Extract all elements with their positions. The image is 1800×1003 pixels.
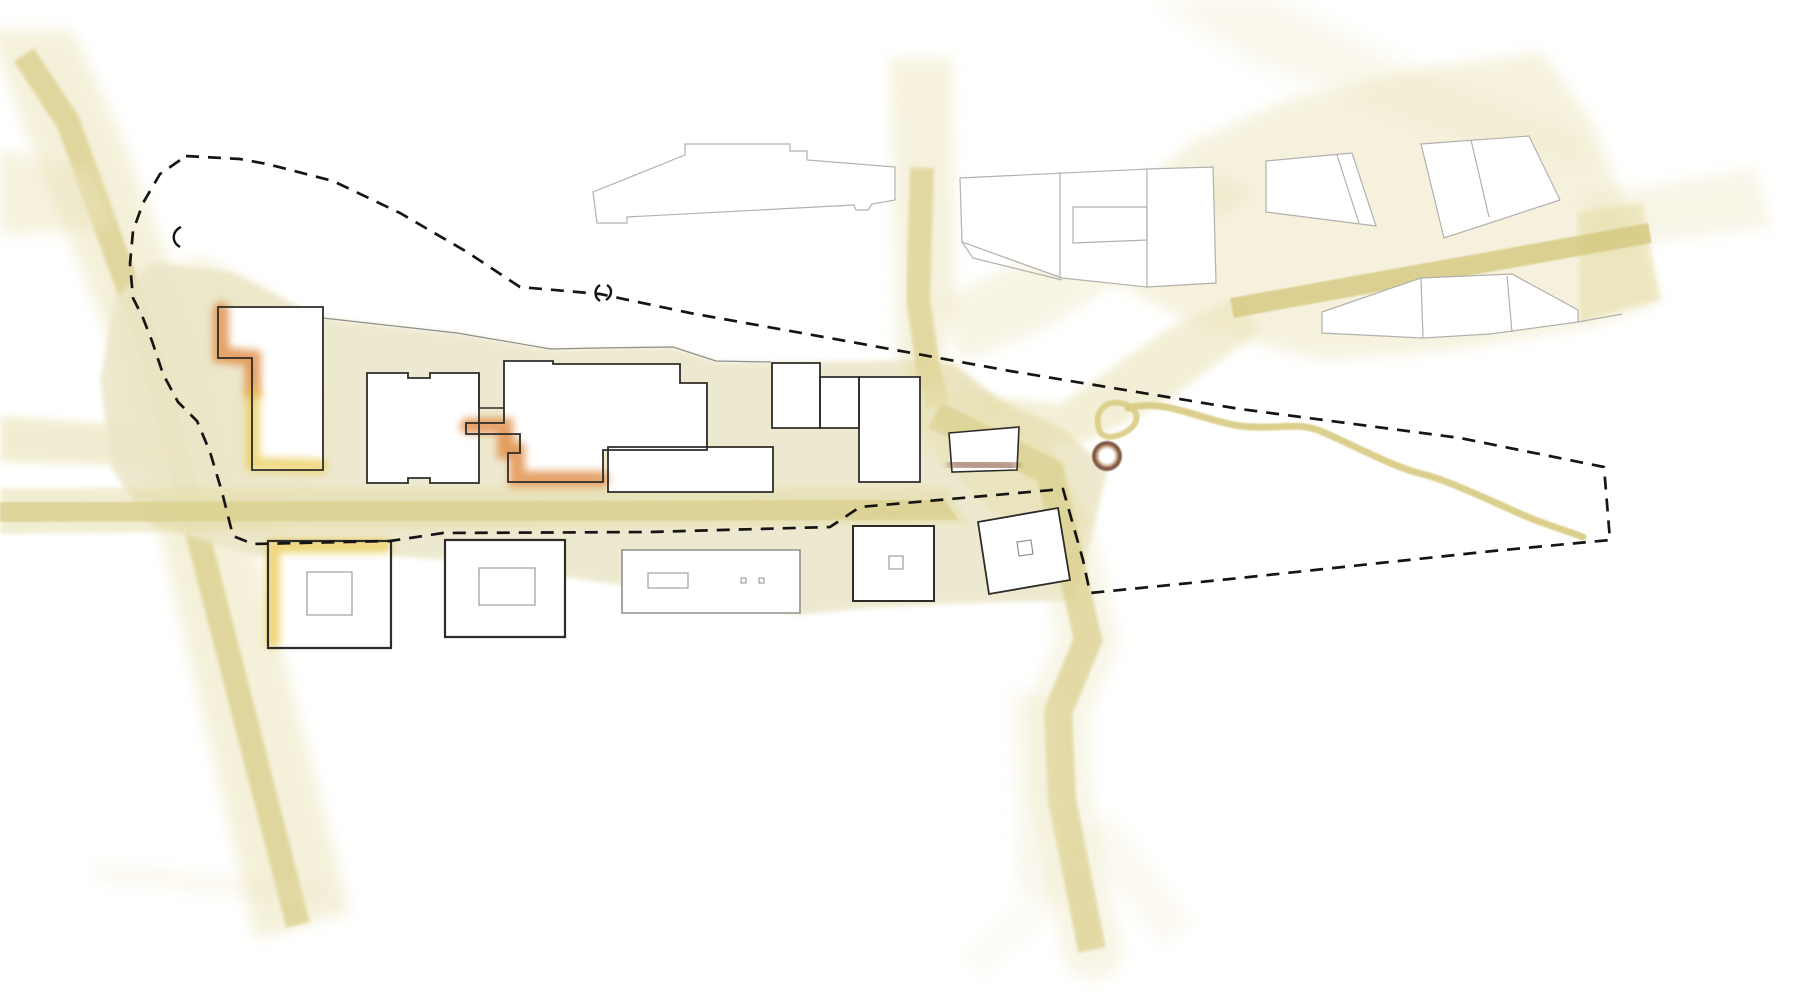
landmark-circle-marker (1091, 440, 1123, 472)
mill-east-c-fill (859, 377, 920, 482)
south-road-left-branch (972, 890, 1058, 965)
site-plan-figure (0, 0, 1800, 1003)
markers (1091, 440, 1123, 472)
south-building-1-fill (268, 541, 391, 648)
south-building-2-fill (445, 540, 565, 637)
south-building-5-fill (978, 508, 1070, 594)
northeast-block (960, 167, 1216, 287)
north-long-building (593, 144, 895, 223)
boundary-hook-west (174, 227, 181, 247)
boundary-hook-mid-2 (606, 285, 611, 300)
south-building-3-fill (622, 550, 800, 613)
main-street-core (0, 500, 958, 522)
south-road-left-wash (1012, 688, 1066, 898)
site-plan-svg (0, 0, 1800, 1003)
glow-parallelogram-brown (954, 464, 1013, 466)
south-building-4-fill (853, 526, 934, 601)
